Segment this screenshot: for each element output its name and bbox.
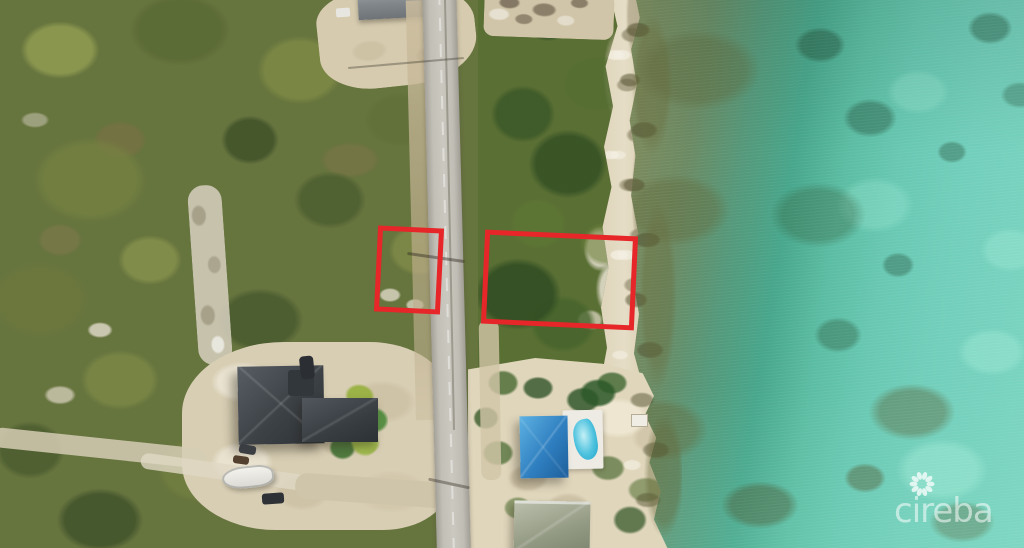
parked-car (299, 355, 315, 379)
road-shoulder-east (479, 320, 502, 480)
lot-boundary-west (374, 225, 444, 314)
estate-house-wing-roof (302, 398, 378, 442)
white-vehicle (336, 8, 351, 18)
blue-roof-house (519, 416, 568, 479)
shore-platform (631, 414, 648, 427)
cireba-watermark: cireba (880, 460, 1024, 544)
aerial-photo: cireba (0, 0, 1024, 548)
cireba-logo-text: cireba (894, 494, 993, 528)
bottom-house-roof (514, 500, 591, 548)
parked-van (262, 492, 285, 505)
lot-boundary-east (481, 230, 638, 331)
